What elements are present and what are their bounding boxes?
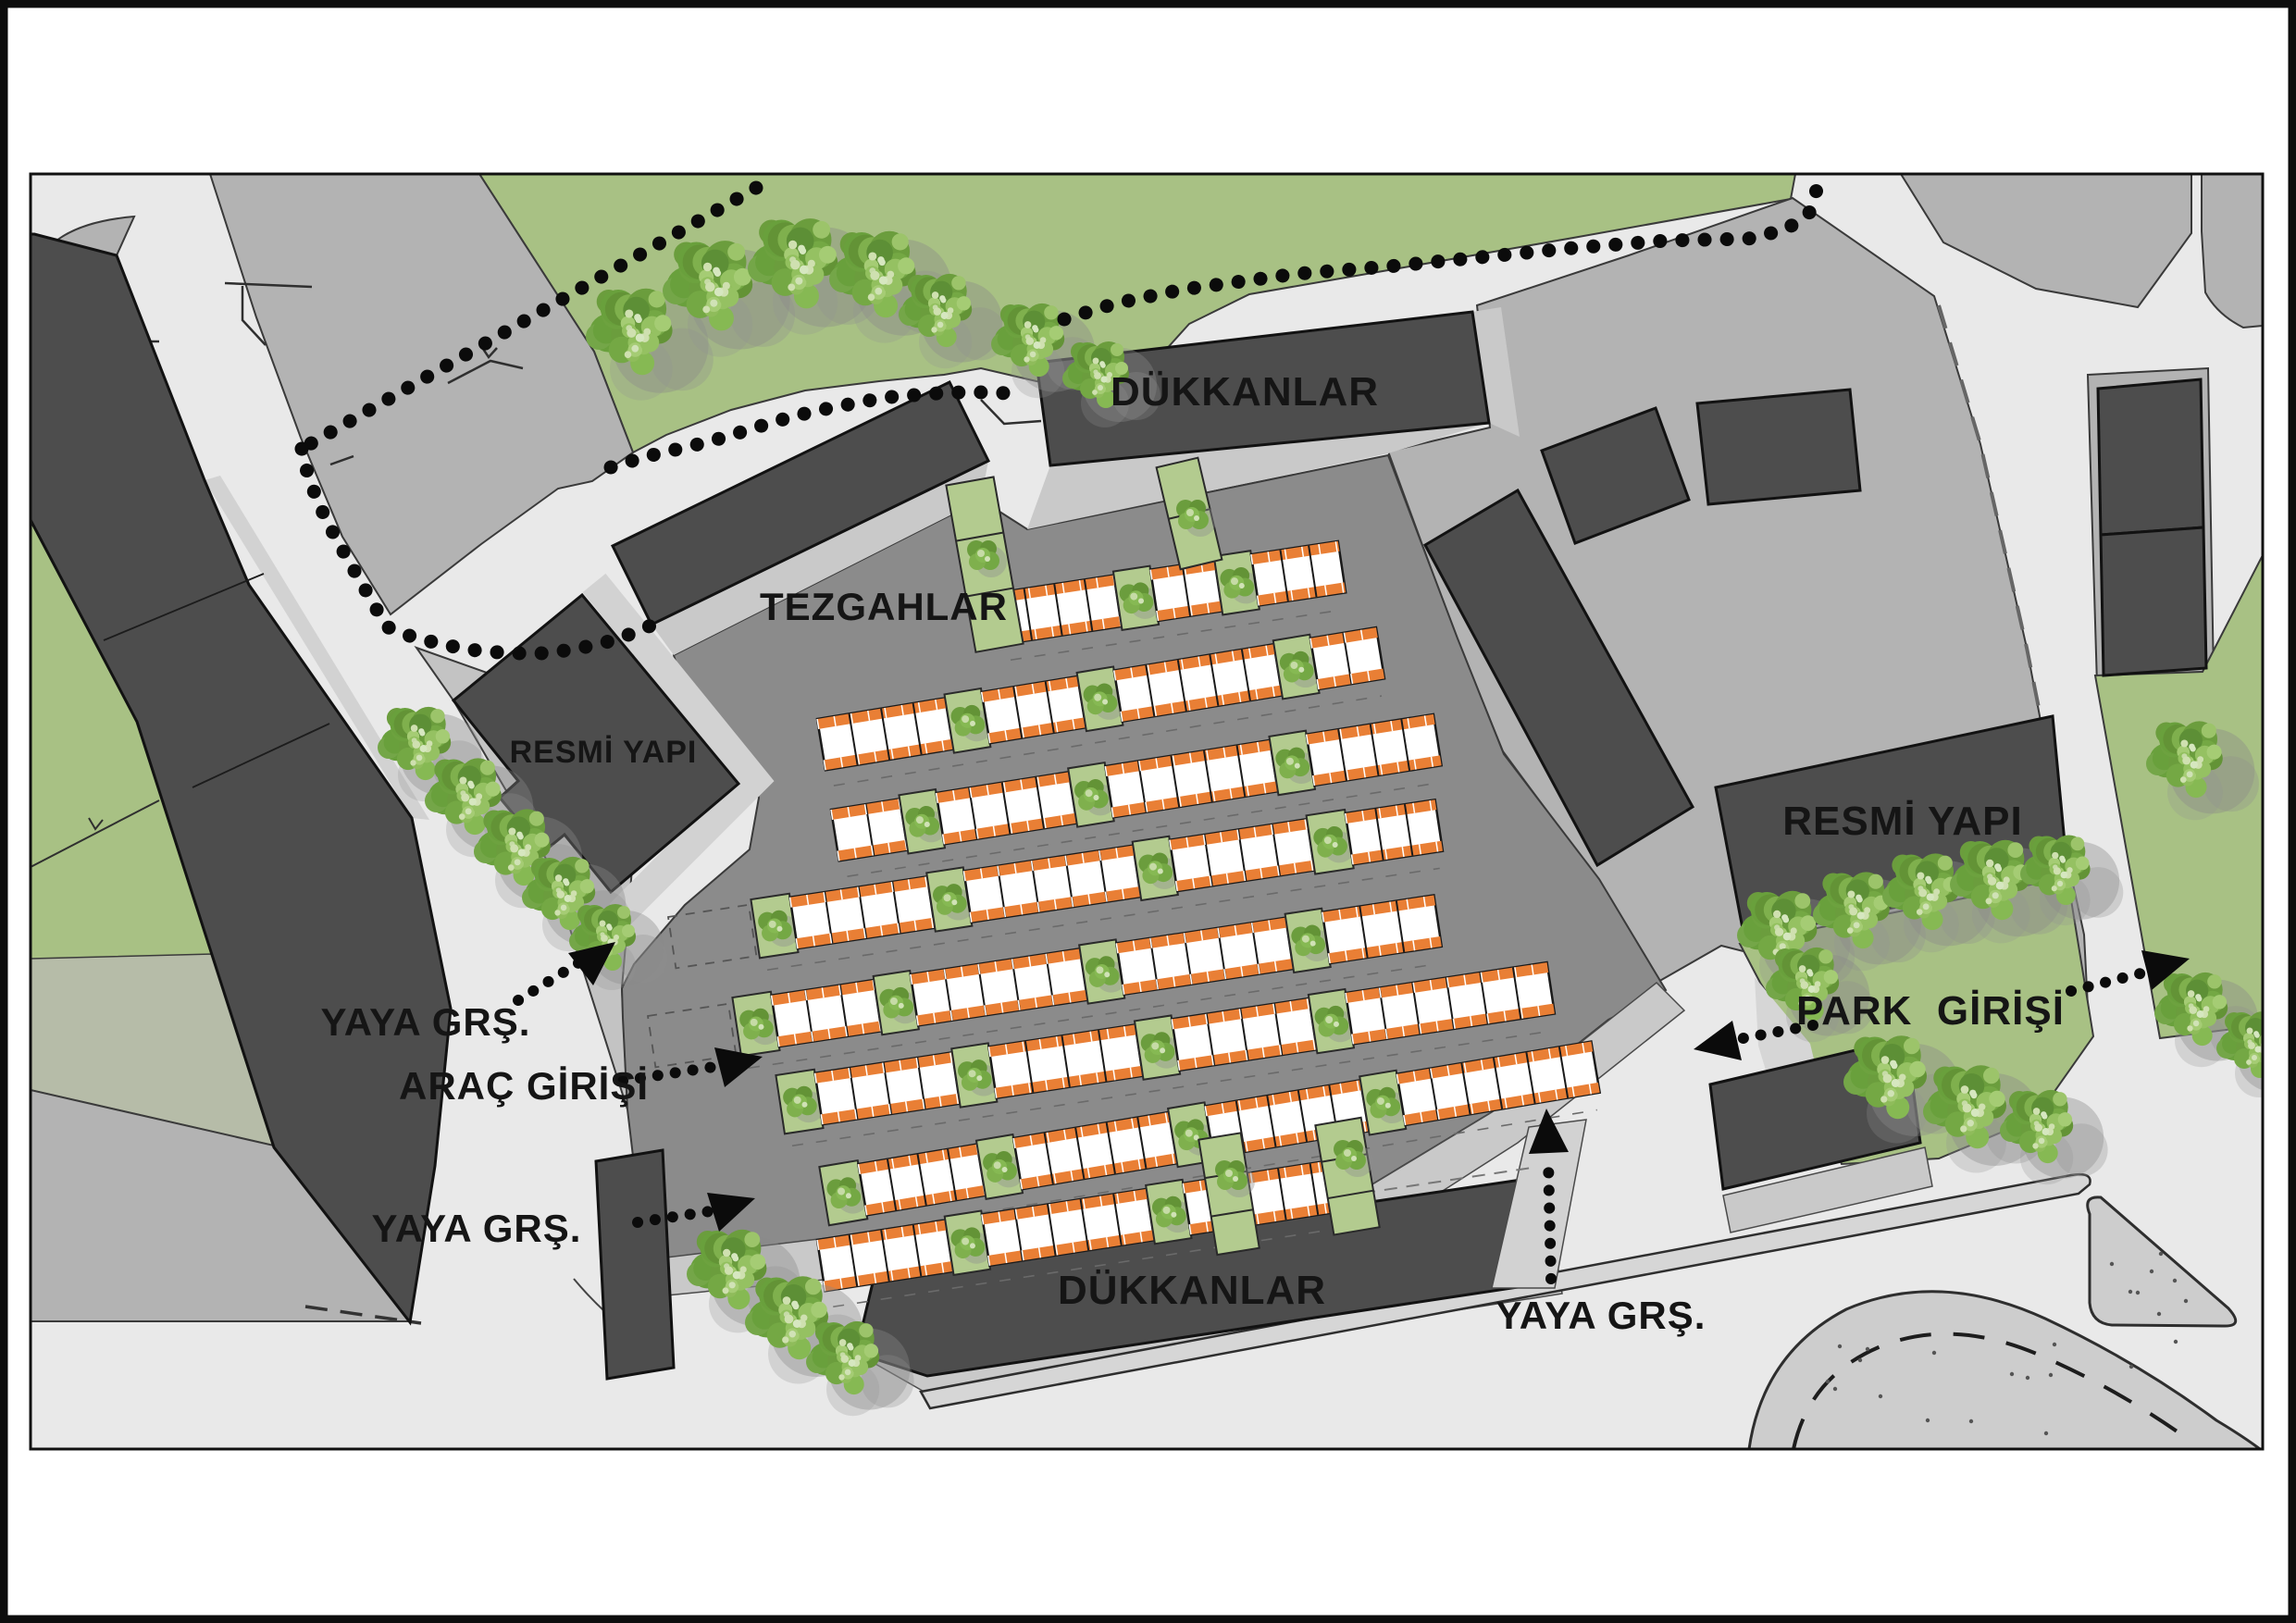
svg-text:YAYA GRŞ.: YAYA GRŞ. (321, 1000, 531, 1044)
svg-text:DÜKKANLAR: DÜKKANLAR (1111, 369, 1379, 415)
svg-text:DÜKKANLAR: DÜKKANLAR (1058, 1268, 1326, 1313)
svg-text:YAYA GRŞ.: YAYA GRŞ. (372, 1207, 582, 1250)
svg-text:RESMİ YAPI: RESMİ YAPI (1782, 799, 2022, 844)
svg-text:YAYA GRŞ.: YAYA GRŞ. (1496, 1294, 1706, 1337)
svg-text:TEZGAHLAR: TEZGAHLAR (760, 585, 1008, 628)
svg-text:PARK GİRİŞİ: PARK GİRİŞİ (1796, 988, 2065, 1034)
svg-text:RESMİ YAPI: RESMİ YAPI (510, 735, 698, 770)
svg-text:ARAÇ GİRİŞİ: ARAÇ GİRİŞİ (399, 1064, 649, 1108)
